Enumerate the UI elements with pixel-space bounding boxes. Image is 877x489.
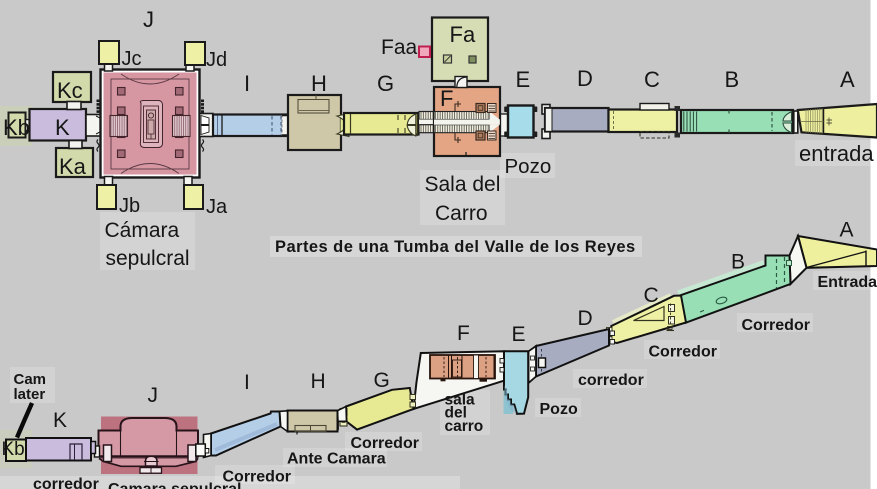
- svg-text:Cámara: Cámara: [105, 219, 180, 242]
- svg-text:G: G: [377, 71, 394, 96]
- svg-text:G: G: [374, 369, 390, 392]
- svg-text:E: E: [512, 323, 526, 346]
- svg-text:A: A: [840, 219, 854, 242]
- svg-text:Jd: Jd: [206, 49, 227, 71]
- svg-text:Camara sepulcral: Camara sepulcral: [108, 481, 241, 489]
- svg-text:Sala del: Sala del: [425, 173, 501, 196]
- svg-text:I: I: [244, 371, 250, 394]
- svg-text:C: C: [644, 284, 659, 307]
- svg-text:Kb: Kb: [3, 115, 30, 140]
- svg-text:Fa: Fa: [450, 22, 476, 47]
- svg-text:Jb: Jb: [119, 195, 140, 217]
- svg-text:Kb: Kb: [2, 439, 25, 460]
- svg-text:Ante Camara: Ante Camara: [287, 451, 386, 468]
- svg-text:H: H: [311, 370, 326, 393]
- svg-text:C: C: [644, 67, 660, 92]
- svg-text:Corredor: Corredor: [649, 344, 717, 361]
- svg-text:B: B: [725, 67, 740, 92]
- svg-text:Partes de una Tumba del Valle: Partes de una Tumba del Valle de los Rey…: [275, 238, 636, 256]
- svg-text:sepulcral: sepulcral: [106, 247, 190, 270]
- svg-text:Jc: Jc: [122, 48, 142, 70]
- svg-text:Entrada: Entrada: [818, 274, 877, 291]
- svg-text:I: I: [244, 71, 250, 96]
- svg-text:D: D: [577, 66, 593, 91]
- svg-text:carro: carro: [445, 418, 484, 435]
- svg-text:Corredor: Corredor: [223, 469, 291, 486]
- svg-text:later: later: [14, 386, 46, 403]
- svg-text:Kc: Kc: [57, 78, 83, 103]
- svg-text:F: F: [440, 86, 453, 111]
- svg-text:D: D: [578, 307, 593, 330]
- svg-text:Corredor: Corredor: [351, 435, 419, 452]
- svg-text:K: K: [55, 115, 70, 140]
- svg-text:K: K: [53, 409, 67, 432]
- svg-text:Carro: Carro: [435, 202, 488, 225]
- svg-text:H: H: [311, 71, 327, 96]
- svg-text:Pozo: Pozo: [505, 155, 552, 178]
- svg-text:corredor: corredor: [578, 372, 644, 389]
- svg-text:Corredor: Corredor: [742, 317, 810, 334]
- svg-text:Ja: Ja: [206, 196, 228, 218]
- svg-text:B: B: [731, 251, 745, 274]
- svg-text:A: A: [840, 67, 855, 92]
- svg-text:E: E: [516, 67, 531, 92]
- svg-text:entrada: entrada: [799, 141, 874, 166]
- svg-text:F: F: [457, 322, 470, 345]
- svg-text:corredor: corredor: [33, 476, 99, 489]
- svg-text:Ka: Ka: [59, 154, 87, 179]
- svg-text:J: J: [148, 384, 159, 407]
- svg-text:Pozo: Pozo: [540, 401, 578, 418]
- svg-text:J: J: [143, 7, 154, 32]
- svg-text:Faa: Faa: [381, 36, 418, 59]
